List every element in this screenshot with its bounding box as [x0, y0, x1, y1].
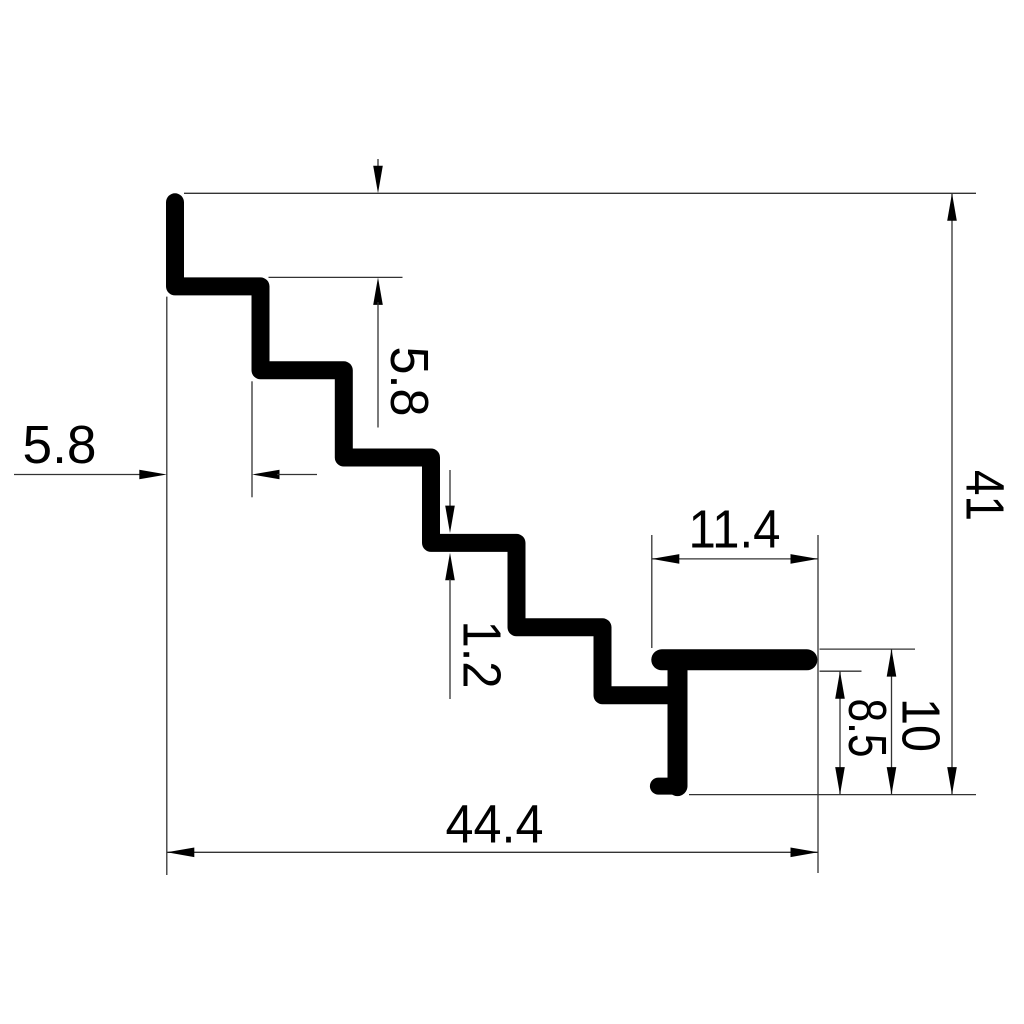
svg-text:11.4: 11.4 [689, 500, 781, 560]
svg-text:8.5: 8.5 [837, 699, 897, 758]
svg-text:41: 41 [955, 470, 1015, 521]
svg-text:5.8: 5.8 [23, 415, 97, 475]
svg-text:5.8: 5.8 [379, 347, 439, 417]
svg-text:44.4: 44.4 [446, 795, 544, 855]
svg-text:10: 10 [891, 698, 951, 752]
svg-text:1.2: 1.2 [452, 621, 512, 689]
